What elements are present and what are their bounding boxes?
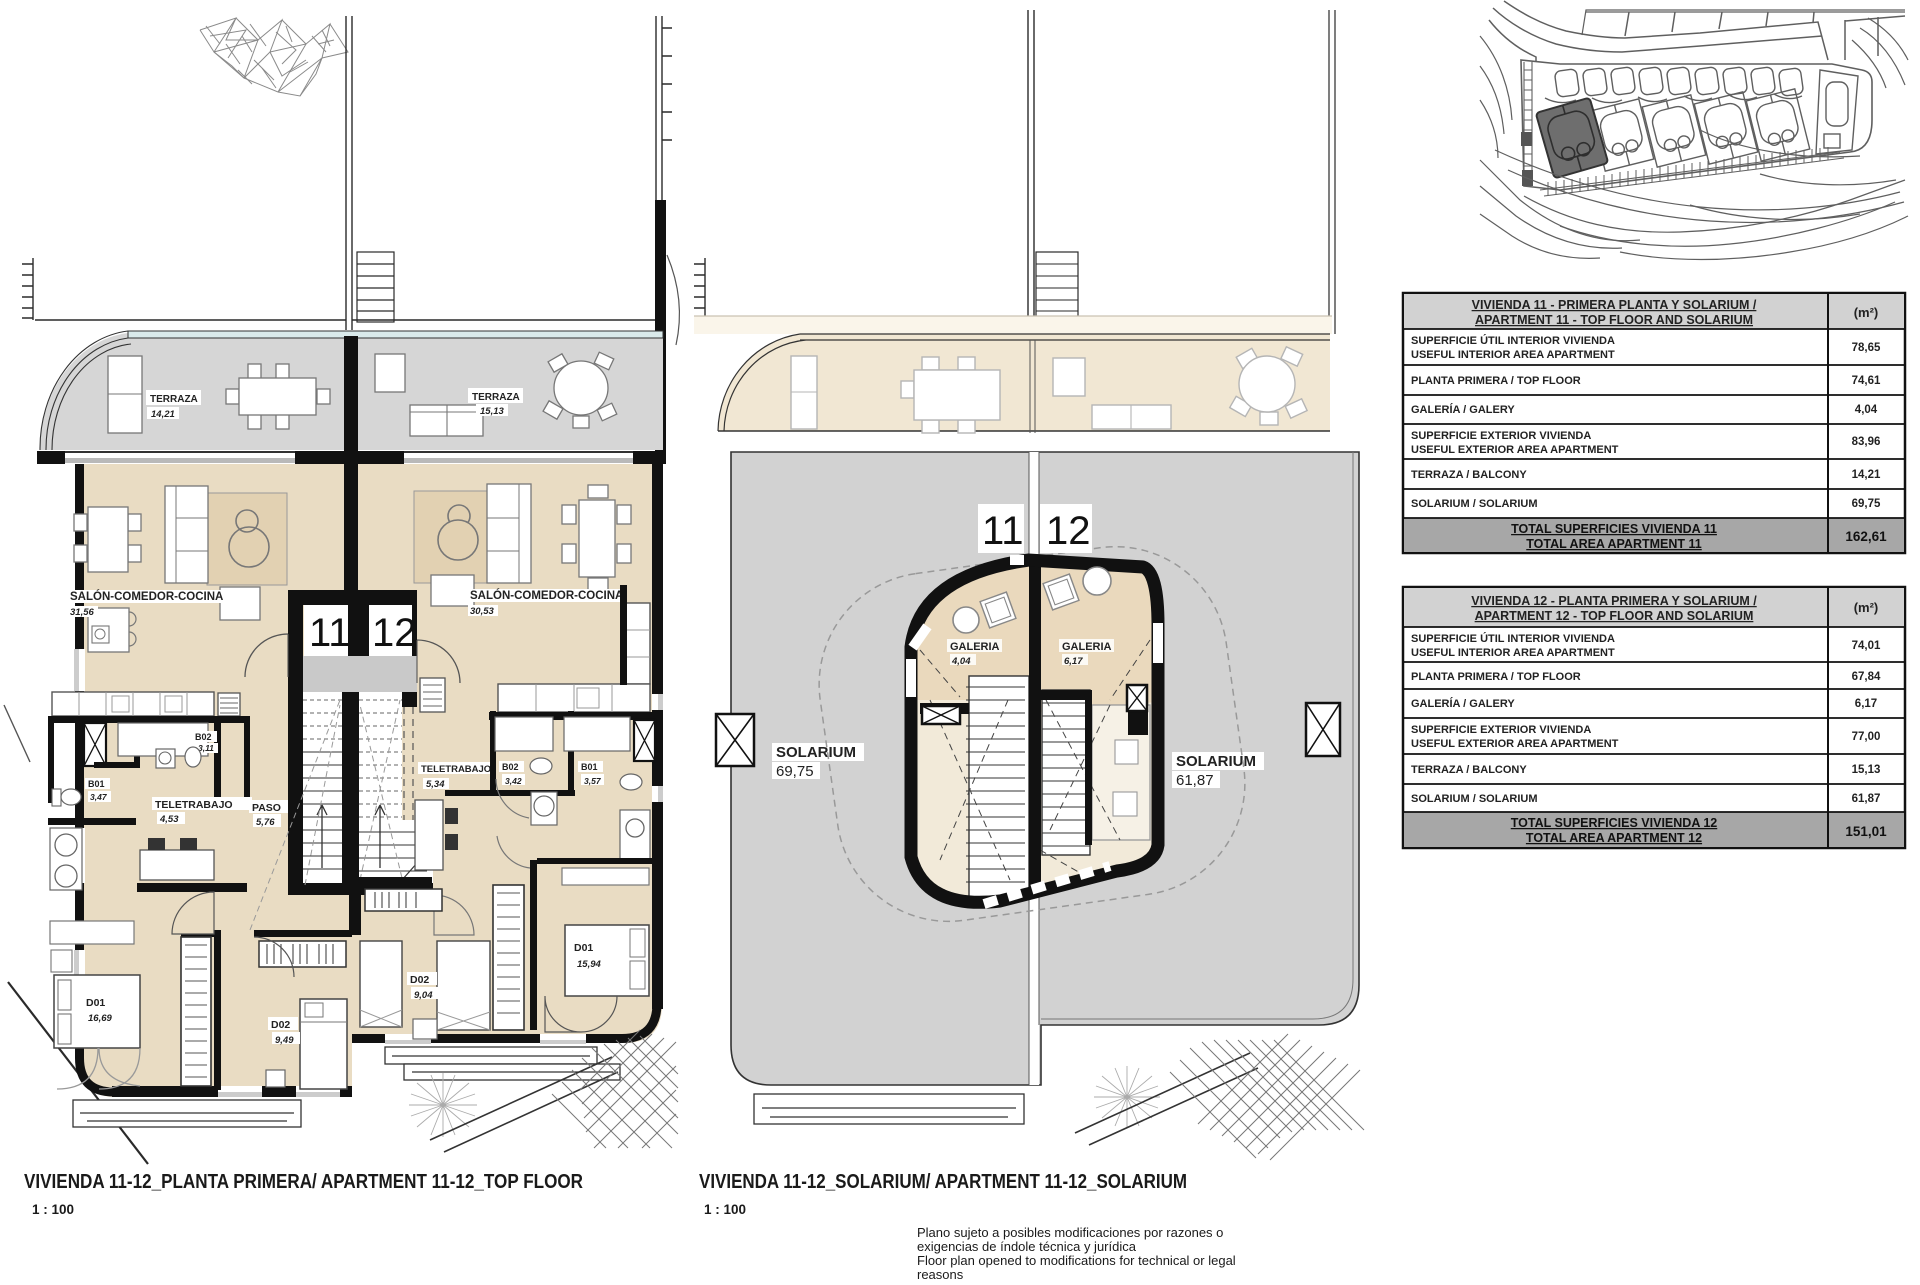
svg-text:SOLARIUM / SOLARIUM: SOLARIUM / SOLARIUM [1411, 498, 1538, 510]
svg-text:16,69: 16,69 [88, 1013, 112, 1024]
svg-text:D01: D01 [574, 942, 593, 954]
svg-text:4,04: 4,04 [951, 656, 971, 667]
svg-text:TERRAZA: TERRAZA [472, 392, 520, 403]
svg-text:69,75: 69,75 [1852, 498, 1881, 510]
svg-text:SALÓN-COMEDOR-COCINA: SALÓN-COMEDOR-COCINA [470, 589, 623, 602]
svg-text:B02: B02 [502, 762, 519, 772]
svg-text:15,94: 15,94 [577, 959, 601, 970]
svg-text:69,75: 69,75 [776, 763, 814, 780]
svg-text:PLANTA PRIMERA / TOP FLOOR: PLANTA PRIMERA / TOP FLOOR [1411, 375, 1581, 387]
svg-text:GALERÍA / GALERY: GALERÍA / GALERY [1411, 403, 1515, 416]
svg-text:31,56: 31,56 [70, 607, 94, 618]
svg-text:B01: B01 [581, 762, 598, 772]
svg-text:D02: D02 [410, 974, 429, 986]
svg-text:USEFUL EXTERIOR AREA APARTMENT: USEFUL EXTERIOR AREA APARTMENT [1411, 738, 1619, 750]
svg-text:TOTAL AREA APARTMENT 11: TOTAL AREA APARTMENT 11 [1526, 537, 1702, 551]
svg-text:6,17: 6,17 [1064, 656, 1083, 667]
svg-text:SUPERFICIE EXTERIOR VIVIENDA: SUPERFICIE EXTERIOR VIVIENDA [1411, 724, 1591, 736]
svg-text:VIVIENDA 11-12_SOLARIUM/ APART: VIVIENDA 11-12_SOLARIUM/ APARTMENT 11-12… [699, 1171, 1187, 1193]
svg-text:D01: D01 [86, 997, 105, 1009]
svg-text:(m²): (m²) [1854, 600, 1879, 615]
svg-text:VIVIENDA 12 - PLANTA PRIMERA Y: VIVIENDA 12 - PLANTA PRIMERA Y SOLARIUM … [1471, 594, 1757, 608]
svg-text:11: 11 [309, 611, 351, 655]
svg-text:TOTAL SUPERFICIES VIVIENDA 11: TOTAL SUPERFICIES VIVIENDA 11 [1511, 522, 1717, 536]
svg-text:SOLARIUM: SOLARIUM [1176, 753, 1256, 770]
svg-text:SALÓN-COMEDOR-COCINA: SALÓN-COMEDOR-COCINA [70, 590, 223, 603]
svg-text:GALERÍA / GALERY: GALERÍA / GALERY [1411, 697, 1515, 710]
svg-text:3,47: 3,47 [90, 792, 108, 802]
svg-text:11: 11 [982, 509, 1024, 553]
svg-text:12: 12 [372, 611, 417, 655]
svg-text:14,21: 14,21 [151, 409, 175, 420]
svg-text:(m²): (m²) [1854, 305, 1879, 320]
svg-text:SUPERFICIE ÚTIL INTERIOR VIVIE: SUPERFICIE ÚTIL INTERIOR VIVIENDA [1411, 334, 1615, 347]
svg-text:74,01: 74,01 [1852, 640, 1881, 652]
svg-text:5,34: 5,34 [426, 779, 445, 790]
svg-text:TELETRABAJO: TELETRABAJO [421, 764, 491, 775]
svg-text:15,13: 15,13 [1852, 764, 1881, 776]
svg-text:9,49: 9,49 [275, 1035, 294, 1046]
svg-text:5,76: 5,76 [256, 817, 275, 828]
svg-text:APARTMENT 12 - TOP FLOOR AND S: APARTMENT 12 - TOP FLOOR AND SOLARIUM [1475, 609, 1754, 623]
svg-text:SUPERFICIE ÚTIL INTERIOR VIVIE: SUPERFICIE ÚTIL INTERIOR VIVIENDA [1411, 632, 1615, 645]
svg-text:74,61: 74,61 [1852, 375, 1881, 387]
svg-text:83,96: 83,96 [1852, 436, 1881, 448]
svg-text:SOLARIUM: SOLARIUM [776, 744, 856, 761]
svg-text:3,11: 3,11 [198, 743, 214, 753]
svg-text:Plano sujeto a posibles modifi: Plano sujeto a posibles modificaciones p… [917, 1225, 1223, 1240]
svg-text:PASO: PASO [252, 802, 281, 814]
svg-text:TELETRABAJO: TELETRABAJO [155, 799, 233, 811]
svg-text:15,13: 15,13 [480, 406, 504, 417]
svg-text:6,17: 6,17 [1855, 698, 1877, 710]
svg-text:151,01: 151,01 [1845, 824, 1887, 839]
svg-text:USEFUL INTERIOR AREA APARTMENT: USEFUL INTERIOR AREA APARTMENT [1411, 349, 1615, 361]
svg-text:30,53: 30,53 [470, 606, 494, 617]
svg-text:61,87: 61,87 [1852, 793, 1881, 805]
svg-text:TERRAZA / BALCONY: TERRAZA / BALCONY [1411, 469, 1527, 481]
svg-text:VIVIENDA 11 - PRIMERA PLANTA Y: VIVIENDA 11 - PRIMERA PLANTA Y SOLARIUM … [1472, 298, 1757, 312]
svg-text:TOTAL AREA APARTMENT 12: TOTAL AREA APARTMENT 12 [1526, 831, 1702, 845]
svg-text:1 : 100: 1 : 100 [704, 1202, 746, 1217]
svg-text:Floor plan opened to modificat: Floor plan opened to modifications for t… [917, 1253, 1236, 1268]
svg-text:GALERIA: GALERIA [1062, 641, 1112, 653]
svg-text:USEFUL INTERIOR AREA APARTMENT: USEFUL INTERIOR AREA APARTMENT [1411, 647, 1615, 659]
svg-text:exigencias de índole técnica y: exigencias de índole técnica y jurídica [917, 1239, 1137, 1254]
svg-text:14,21: 14,21 [1852, 469, 1881, 481]
svg-text:TERRAZA / BALCONY: TERRAZA / BALCONY [1411, 764, 1527, 776]
svg-text:SUPERFICIE EXTERIOR VIVIENDA: SUPERFICIE EXTERIOR VIVIENDA [1411, 430, 1591, 442]
svg-text:67,84: 67,84 [1852, 671, 1881, 683]
svg-text:1 : 100: 1 : 100 [32, 1202, 74, 1217]
svg-text:3,57: 3,57 [584, 776, 602, 786]
svg-text:TOTAL SUPERFICIES VIVIENDA 12: TOTAL SUPERFICIES VIVIENDA 12 [1511, 816, 1718, 830]
svg-text:B01: B01 [88, 779, 105, 789]
svg-text:3,42: 3,42 [505, 776, 522, 786]
svg-text:61,87: 61,87 [1176, 772, 1214, 789]
svg-text:SOLARIUM / SOLARIUM: SOLARIUM / SOLARIUM [1411, 793, 1538, 805]
svg-text:APARTMENT 11 - TOP FLOOR AND S: APARTMENT 11 - TOP FLOOR AND SOLARIUM [1475, 313, 1753, 327]
svg-text:VIVIENDA 11-12_PLANTA PRIMERA/: VIVIENDA 11-12_PLANTA PRIMERA/ APARTMENT… [24, 1171, 583, 1193]
svg-text:PLANTA PRIMERA / TOP FLOOR: PLANTA PRIMERA / TOP FLOOR [1411, 671, 1581, 683]
svg-text:GALERIA: GALERIA [950, 641, 1000, 653]
svg-text:TERRAZA: TERRAZA [150, 394, 198, 405]
svg-text:78,65: 78,65 [1852, 342, 1881, 354]
svg-text:D02: D02 [271, 1019, 290, 1031]
svg-text:162,61: 162,61 [1845, 529, 1887, 544]
svg-text:B02: B02 [195, 732, 212, 742]
svg-text:reasons: reasons [917, 1267, 964, 1280]
svg-text:4,04: 4,04 [1855, 404, 1878, 416]
svg-text:9,04: 9,04 [414, 990, 433, 1001]
svg-text:4,53: 4,53 [159, 814, 179, 825]
svg-text:USEFUL EXTERIOR AREA APARTMENT: USEFUL EXTERIOR AREA APARTMENT [1411, 444, 1619, 456]
svg-text:77,00: 77,00 [1852, 731, 1881, 743]
svg-text:12: 12 [1046, 509, 1091, 553]
